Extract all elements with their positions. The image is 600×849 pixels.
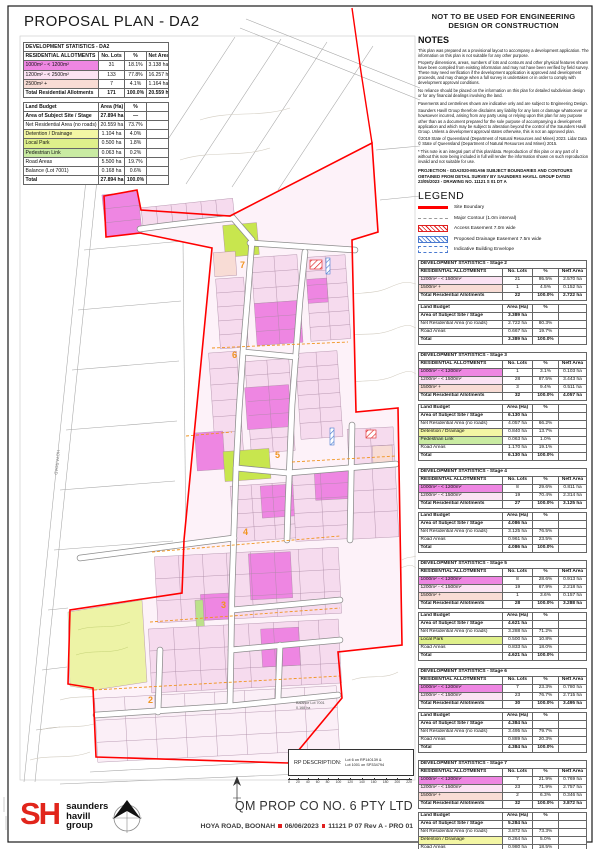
legend-item: Site Boundary (418, 202, 589, 213)
drainage-easement-hatch-2 (330, 428, 334, 445)
separator-icon (322, 824, 326, 828)
table-row: 1000m² - < 1200m²723.3%0.780 ha (419, 684, 587, 692)
scale-tick: 20 (296, 780, 300, 785)
table-row: RESIDENTIAL ALLOTMENTSNo. Lots%Nett Area (419, 360, 587, 368)
park-mid (223, 448, 271, 481)
separator-icon (278, 824, 282, 828)
stats-table: DEVELOPMENT STATISTICS - Stage 5RESIDENT… (418, 560, 587, 609)
stats-table: DEVELOPMENT STATISTICS - Stage 6RESIDENT… (418, 668, 587, 709)
drawing-date: 06/06/2023 (285, 823, 319, 830)
table-row: Local Park0.500 ha1.8% (24, 139, 169, 148)
table-row: Total Residential Allotments32100.0%3.87… (419, 800, 587, 808)
table-row: Total6.130 ha100.0% (419, 453, 587, 461)
table-row: Net Residential Area (no roads)3.495 ha7… (419, 729, 587, 737)
table-row: Detention / Drainage0.264 ha5.0% (419, 837, 587, 845)
stats-table: Land BudgetArea (Ha)%Area of Subject Sit… (418, 404, 587, 461)
table-row: 1000m² - < 1200m²13.1%0.103 ha (419, 368, 587, 376)
stage-stats-block: DEVELOPMENT STATISTICS - Stage 7RESIDENT… (418, 760, 589, 849)
scale-tick: 100 (336, 780, 342, 785)
stats-table: Land BudgetArea (Ha)%Area of Subject Sit… (418, 304, 587, 345)
drawing-number: 11121 P 07 Rev A - PRO 01 (328, 823, 413, 830)
table-row: Total4.621 ha100.0% (419, 653, 587, 661)
table-row: 1500m² +39.4%0.511 ha (419, 384, 587, 392)
scale-tick: 60 (316, 780, 320, 785)
table-row: Balance (Lot 7001)0.168 ha0.6% (24, 166, 169, 175)
site-boundary-extension (352, 8, 372, 143)
table-row: Total3.389 ha100.0% (419, 337, 587, 345)
right-column: NOT TO BE USED FOR ENGINEERING DESIGN OR… (418, 12, 589, 849)
stage-label-2: 2 (148, 695, 153, 705)
scale-tick: 40 (306, 780, 310, 785)
table-row: Area of Subject Site / Stage4.384 ha (419, 721, 587, 729)
scale-tick: 220 (406, 780, 412, 785)
notes-paragraph: Pavements and centrelines shown are indi… (418, 101, 589, 106)
logo-text: saundershavillgroup (66, 802, 108, 831)
drainage-swatch-icon (418, 236, 448, 243)
legend-item-label: Access Easement 7.0m wide (454, 226, 516, 231)
balance-label-2: 0.168 ha (296, 706, 311, 710)
table-row: 1200m² - < 1500m²1967.9%2.218 ha (419, 584, 587, 592)
table-row: Road Areas0.833 ha18.0% (419, 645, 587, 653)
table-row: Total27.894 ha100.0% (24, 176, 169, 185)
stage-label-3: 3 (221, 600, 226, 610)
stats-table: Land BudgetArea (Ha)%Area of Subject Sit… (418, 712, 587, 753)
stage-label-6: 6 (232, 350, 237, 360)
table-row: Road Areas0.667 ha19.7% (419, 329, 587, 337)
table-row: DEVELOPMENT STATISTICS - Stage 3 (419, 352, 587, 360)
da2-statistics-table: DEVELOPMENT STATISTICS - DA2RESIDENTIAL … (23, 42, 168, 185)
table-row: 1000m² - < 1200m²3118.1%3.138 ha (24, 61, 169, 70)
table-row: 1000m² - < 1200m²828.6%0.913 ha (419, 576, 587, 584)
table-row: 1200m² - < 1500m²2371.9%2.757 ha (419, 784, 587, 792)
stats-table: DEVELOPMENT STATISTICS - Stage 7RESIDENT… (418, 760, 587, 809)
stage-stats-block: DEVELOPMENT STATISTICS - Stage 5RESIDENT… (418, 560, 589, 662)
boundary-swatch-icon (418, 206, 448, 209)
table-row: Local Park0.500 ha10.8% (419, 637, 587, 645)
page-title: PROPOSAL PLAN - DA2 (24, 13, 199, 30)
table-row: Pedestrian Link0.063 ha1.0% (419, 437, 587, 445)
contour-swatch-icon (418, 218, 448, 219)
notes-paragraph: * This note is an integral part of this … (418, 149, 589, 164)
table-row: 2500m² +74.1%1.164 ha (24, 79, 169, 88)
table-row: Land BudgetArea (Ha)% (419, 305, 587, 313)
road-label: HOYA ROAD (53, 450, 61, 475)
rp-description-label: RP DESCRIPTION: (294, 760, 341, 766)
client-name: QM PROP CO NO. 6 PTY LTD (230, 799, 413, 813)
stats-table: Land BudgetArea (Ha)%Area of Subject Sit… (418, 612, 587, 661)
table-row: Land BudgetArea (Ha)% (419, 405, 587, 413)
scale-tick: 120 (347, 780, 353, 785)
rp-description-box: RP DESCRIPTION: Lot 6 on RP140139 &Lot 1… (288, 749, 414, 776)
access-easement-hatch (310, 260, 322, 269)
stage-tables: DEVELOPMENT STATISTICS - Stage 2RESIDENT… (418, 260, 589, 849)
project-address: HOYA ROAD, BOONAH (201, 823, 276, 830)
table-row: 1200m² - < 1500m²2195.5%2.570 ha (419, 276, 587, 284)
table-row: 1500m² +13.6%0.157 ha (419, 592, 587, 600)
table-row: Net Residential Area (no roads)2.722 ha8… (419, 321, 587, 329)
table-row: Land BudgetArea (Ha)% (419, 813, 587, 821)
table-row: Total Residential Allotments22100.0%2.72… (419, 292, 587, 300)
table-row: Net Residential Area (no roads)4.057 ha6… (419, 421, 587, 429)
legend-item: Major Contour (1.0m interval) (418, 213, 589, 224)
stats-table: Land BudgetArea (Ha)%Area of Subject Sit… (418, 812, 587, 849)
table-row: RESIDENTIAL ALLOTMENTSNo. Lots%Net Area (24, 52, 169, 61)
table-row: Area of Subject Site / Stage4.086 ha (419, 521, 587, 529)
projection-note: PROJECTION - GDA2020-MGA56 SUBJECT BOUND… (418, 168, 589, 184)
scale-tick: 0 (288, 780, 290, 785)
table-row: Area of Subject Site / Stage4.621 ha (419, 621, 587, 629)
table-row: 1200m² - < 1500m²2887.5%3.443 ha (419, 376, 587, 384)
stage-label-4: 4 (243, 527, 248, 537)
scale-tick: 180 (383, 780, 389, 785)
legend: Site BoundaryMajor Contour (1.0m interva… (418, 202, 589, 255)
stats-table: DEVELOPMENT STATISTICS - Stage 4RESIDENT… (418, 468, 587, 509)
stats-table: Land BudgetArea (Ha)%Area of Subject Sit… (418, 512, 587, 553)
notes-paragraph: No reliance should be placed on the info… (418, 88, 589, 98)
table-row: RESIDENTIAL ALLOTMENTSNo. Lots%Nett Area (419, 476, 587, 484)
table-row: Total Residential Allotments171100.0%20.… (24, 88, 169, 97)
table-row: Land BudgetArea (Ha)% (419, 713, 587, 721)
table-row: Net Residential Area (no roads)20.559 ha… (24, 121, 169, 130)
table-row: Area of Subject Site / Stage27.894 ha— (24, 111, 169, 120)
legend-item: Indicative Building Envelope (418, 244, 589, 255)
stats-table: DEVELOPMENT STATISTICS - Stage 3RESIDENT… (418, 352, 587, 401)
legend-item-label: Major Contour (1.0m interval) (454, 216, 516, 221)
scale-tick: 160 (371, 780, 377, 785)
drainage-easement-hatch (326, 258, 330, 274)
table-row: Total Residential Allotments32100.0%4.05… (419, 392, 587, 400)
table-row: DEVELOPMENT STATISTICS - Stage 2 (419, 260, 587, 268)
scale-tick: 140 (359, 780, 365, 785)
table-row: DEVELOPMENT STATISTICS - DA2 (24, 43, 169, 52)
stats-table: DEVELOPMENT STATISTICS - Stage 2RESIDENT… (418, 260, 587, 301)
table-row: Land BudgetArea (Ha)% (24, 102, 169, 111)
stage-label-5: 5 (275, 450, 280, 460)
table-row: DEVELOPMENT STATISTICS - Stage 7 (419, 760, 587, 768)
table-row: RESIDENTIAL ALLOTMENTSNo. Lots%Nett Area (419, 268, 587, 276)
lots-magenta-nw (102, 191, 142, 237)
stage-stats-block: DEVELOPMENT STATISTICS - Stage 6RESIDENT… (418, 668, 589, 754)
table-row: Net Residential Area (no roads)3.288 ha7… (419, 629, 587, 637)
access-easement-hatch-2 (366, 430, 376, 438)
logo-mark: SH (20, 799, 59, 829)
legend-item: Access Easement 7.0m wide (418, 223, 589, 234)
legend-item-label: Indicative Building Envelope (454, 247, 514, 252)
table-row: Area of Subject Site / Stage5.284 ha (419, 821, 587, 829)
table-row: Total Residential Allotments27100.0%3.12… (419, 500, 587, 508)
legend-item: Proposed Drainage Easement 7.5m wide (418, 234, 589, 245)
legend-item-label: Proposed Drainage Easement 7.5m wide (454, 237, 541, 242)
stage-label-7: 7 (240, 260, 245, 270)
table-row: RESIDENTIAL ALLOTMENTSNo. Lots%Nett Area (419, 568, 587, 576)
table-row: Road Areas1.170 ha19.1% (419, 445, 587, 453)
table-row: Total4.086 ha100.0% (419, 545, 587, 553)
table-row: Net Residential Area (no roads)3.872 ha7… (419, 829, 587, 837)
table-row: Total Residential Allotments28100.0%3.28… (419, 600, 587, 608)
table-row: 1200m² - < 1500m²1970.4%2.314 ha (419, 492, 587, 500)
plan-sheet: 7 6 5 4 3 2 HOYA ROAD Balance Lot 7001 0… (0, 0, 600, 849)
table-row: Pedestrian Link0.063 ha0.2% (24, 148, 169, 157)
stage-stats-block: DEVELOPMENT STATISTICS - Stage 2RESIDENT… (418, 260, 589, 346)
notes-paragraph: This plan was prepared as a provisional … (418, 48, 589, 58)
stats-table: Land BudgetArea (Ha)%Area of Subject Sit… (23, 102, 169, 186)
company-logo: SH saundershavillgroup (20, 799, 108, 831)
table-row: Area of Subject Site / Stage3.389 ha (419, 313, 587, 321)
stats-table: DEVELOPMENT STATISTICS - DA2RESIDENTIAL … (23, 42, 169, 98)
table-row: 1000m² - < 1200m²721.9%0.769 ha (419, 776, 587, 784)
warning-text: NOT TO BE USED FOR ENGINEERING DESIGN OR… (418, 12, 589, 30)
table-row: DEVELOPMENT STATISTICS - Stage 5 (419, 560, 587, 568)
scale-bar: 020406080100120140160180200220 (288, 779, 412, 785)
table-row: Detention / Drainage1.104 ha4.0% (24, 130, 169, 139)
access-swatch-icon (418, 225, 448, 232)
scale-tick: 200 (394, 780, 400, 785)
table-row: Road Areas5.500 ha19.7% (24, 157, 169, 166)
stage-stats-block: DEVELOPMENT STATISTICS - Stage 3RESIDENT… (418, 352, 589, 462)
lot-rose-1 (213, 251, 237, 276)
legend-item-label: Site Boundary (454, 205, 484, 210)
notes-paragraphs: This plan was prepared as a provisional … (418, 48, 589, 165)
table-row: Net Residential Area (no roads)3.125 ha7… (419, 529, 587, 537)
table-row: Detention / Drainage0.840 ha13.7% (419, 429, 587, 437)
table-row: Total4.384 ha100.0% (419, 745, 587, 753)
table-row: Road Areas0.961 ha23.5% (419, 537, 587, 545)
lots-magenta-w5 (195, 431, 226, 471)
legend-heading: LEGEND (418, 190, 589, 202)
notes-paragraph: Property dimensions, areas, numbers of l… (418, 60, 589, 85)
table-row: DEVELOPMENT STATISTICS - Stage 6 (419, 668, 587, 676)
table-row: 1500m² +26.3%0.346 ha (419, 792, 587, 800)
table-row: Road Areas0.980 ha18.5% (419, 845, 587, 849)
envelope-swatch-icon (418, 246, 448, 253)
table-row: 1000m² - < 1200m²829.6%0.811 ha (419, 484, 587, 492)
table-row: RESIDENTIAL ALLOTMENTSNo. Lots%Nett Area (419, 676, 587, 684)
table-row: DEVELOPMENT STATISTICS - Stage 4 (419, 468, 587, 476)
table-row: Area of Subject Site / Stage6.130 ha (419, 413, 587, 421)
notes-paragraph: Saunders Havill Group therefore disclaim… (418, 108, 589, 133)
balance-label-1: Balance Lot 7001 (296, 701, 325, 705)
notes-paragraph: ©2019 State of Queensland (Department of… (418, 136, 589, 146)
stage-stats-block: DEVELOPMENT STATISTICS - Stage 4RESIDENT… (418, 468, 589, 554)
table-row: Total Residential Allotments30100.0%3.49… (419, 700, 587, 708)
rp-description-value: Lot 6 on RP140139 &Lot 1001 on SP334794 (345, 758, 384, 767)
table-row: Road Areas0.889 ha20.3% (419, 737, 587, 745)
detention-basin (68, 600, 147, 690)
table-row: Land BudgetArea (Ha)% (419, 513, 587, 521)
table-row: Land BudgetArea (Ha)% (419, 613, 587, 621)
scale-tick: 80 (326, 780, 330, 785)
table-row: 1500m² +14.5%0.152 ha (419, 284, 587, 292)
compass-icon (112, 800, 142, 833)
table-row: RESIDENTIAL ALLOTMENTSNo. Lots%Nett Area (419, 768, 587, 776)
table-row: 1200m² - < 1500m²2376.7%2.715 ha (419, 692, 587, 700)
notes-heading: NOTES (418, 35, 589, 45)
table-row: 1200m² - < 2500m²13377.8%16.257 ha (24, 70, 169, 79)
drawing-info-line: HOYA ROAD, BOONAH06/06/202311121 P 07 Re… (150, 823, 413, 830)
